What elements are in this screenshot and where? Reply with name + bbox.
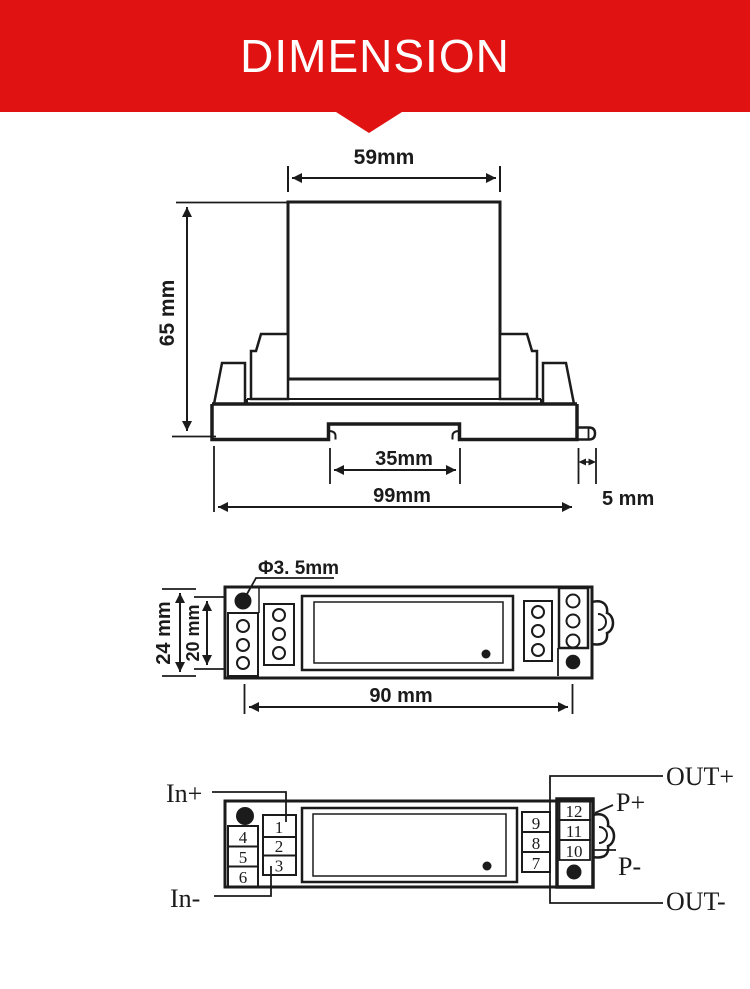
screw-terminal-icon xyxy=(237,639,249,651)
dim-label-35mm: 35mm xyxy=(375,448,433,470)
left-outer-clip xyxy=(214,363,245,404)
module-body xyxy=(288,202,500,379)
screw-terminal-icon xyxy=(273,609,285,621)
terminal-number: 12 xyxy=(566,802,583,821)
screw-terminal-icon xyxy=(567,615,580,628)
terminal-number: 9 xyxy=(532,814,541,833)
label-window-inner xyxy=(314,602,503,663)
dim-label-5mm: 5 mm xyxy=(602,488,654,510)
label-out-plus: OUT+ xyxy=(666,762,734,791)
terminal-number: 10 xyxy=(566,842,583,861)
notch-hooks xyxy=(329,431,460,440)
screw-terminal-icon xyxy=(237,657,249,669)
terminal-block xyxy=(264,604,294,665)
din-clip-arc xyxy=(598,614,606,630)
mounting-hole-icon xyxy=(235,593,252,610)
dim-label-24mm: 24 mm xyxy=(153,601,175,664)
terminal-number: 2 xyxy=(275,837,284,856)
mounting-hole-icon xyxy=(566,655,581,670)
left-inner-clip xyxy=(251,334,288,399)
dim-label-99mm: 99mm xyxy=(373,485,431,507)
terminal-number: 11 xyxy=(566,822,582,841)
label-p-minus: P- xyxy=(618,852,641,881)
screw-terminal-icon xyxy=(532,606,544,618)
terminal-number: 7 xyxy=(532,854,541,873)
screw-terminal-icon xyxy=(532,644,544,656)
screw-terminal-icon xyxy=(567,595,580,608)
screw-terminal-icon xyxy=(237,620,249,632)
mounting-hole-icon xyxy=(567,865,582,880)
wire-p-plus xyxy=(595,805,613,813)
top-view-drawing: Φ3. 5mm xyxy=(153,558,613,714)
arrowhead xyxy=(579,459,587,466)
terminal-number: 5 xyxy=(239,848,248,867)
side-tab xyxy=(577,428,595,440)
screw-terminal-icon xyxy=(273,628,285,640)
screw-terminal-icon xyxy=(532,625,544,637)
dim-label-hole: Φ3. 5mm xyxy=(258,558,339,579)
din-clip-spring xyxy=(592,601,613,644)
front-view-drawing: 59mm 65 mm xyxy=(156,146,654,512)
dimension-diagram-page: DIMENSION 59mm 65 mm xyxy=(0,0,750,989)
dim-label-90mm: 90 mm xyxy=(369,685,432,707)
terminal-block xyxy=(228,613,258,676)
din-clip-spring xyxy=(593,814,614,857)
right-outer-clip xyxy=(543,363,574,404)
terminal-block-987: 9 8 7 xyxy=(522,812,550,873)
terminal-block xyxy=(559,588,588,648)
label-in-minus: In- xyxy=(170,884,200,913)
terminal-block xyxy=(524,601,552,661)
screw-terminal-icon xyxy=(567,635,580,648)
terminal-number: 3 xyxy=(275,857,284,876)
right-inner-clip xyxy=(500,334,537,399)
label-in-plus: In+ xyxy=(166,779,202,808)
terminal-block-456: 4 5 6 xyxy=(228,826,258,887)
label-window-inner xyxy=(313,814,506,876)
dim-label-59mm: 59mm xyxy=(354,146,415,169)
label-window-outer xyxy=(302,808,517,882)
din-clip-arc xyxy=(599,827,607,843)
din-base xyxy=(212,404,577,440)
terminal-number: 6 xyxy=(239,868,248,887)
arrowhead xyxy=(589,459,597,466)
terminal-number: 8 xyxy=(532,834,541,853)
label-window-outer xyxy=(302,596,513,670)
label-p-plus: P+ xyxy=(616,788,645,817)
wiring-view-drawing: 4 5 6 1 2 3 9 8 xyxy=(166,762,734,916)
dim-label-20mm: 20 mm xyxy=(183,604,203,661)
terminal-block-123: 1 2 3 xyxy=(263,815,296,876)
dim-label-65mm: 65 mm xyxy=(156,280,179,347)
indicator-dot xyxy=(482,650,491,659)
terminal-number: 1 xyxy=(275,818,284,837)
terminal-block-121110: 12 11 10 xyxy=(560,801,591,862)
technical-drawing: 59mm 65 mm xyxy=(0,0,750,989)
mounting-hole-icon xyxy=(236,807,254,825)
terminal-number: 4 xyxy=(239,828,248,847)
indicator-dot xyxy=(483,862,492,871)
label-out-minus: OUT- xyxy=(666,887,726,916)
screw-terminal-icon xyxy=(273,647,285,659)
